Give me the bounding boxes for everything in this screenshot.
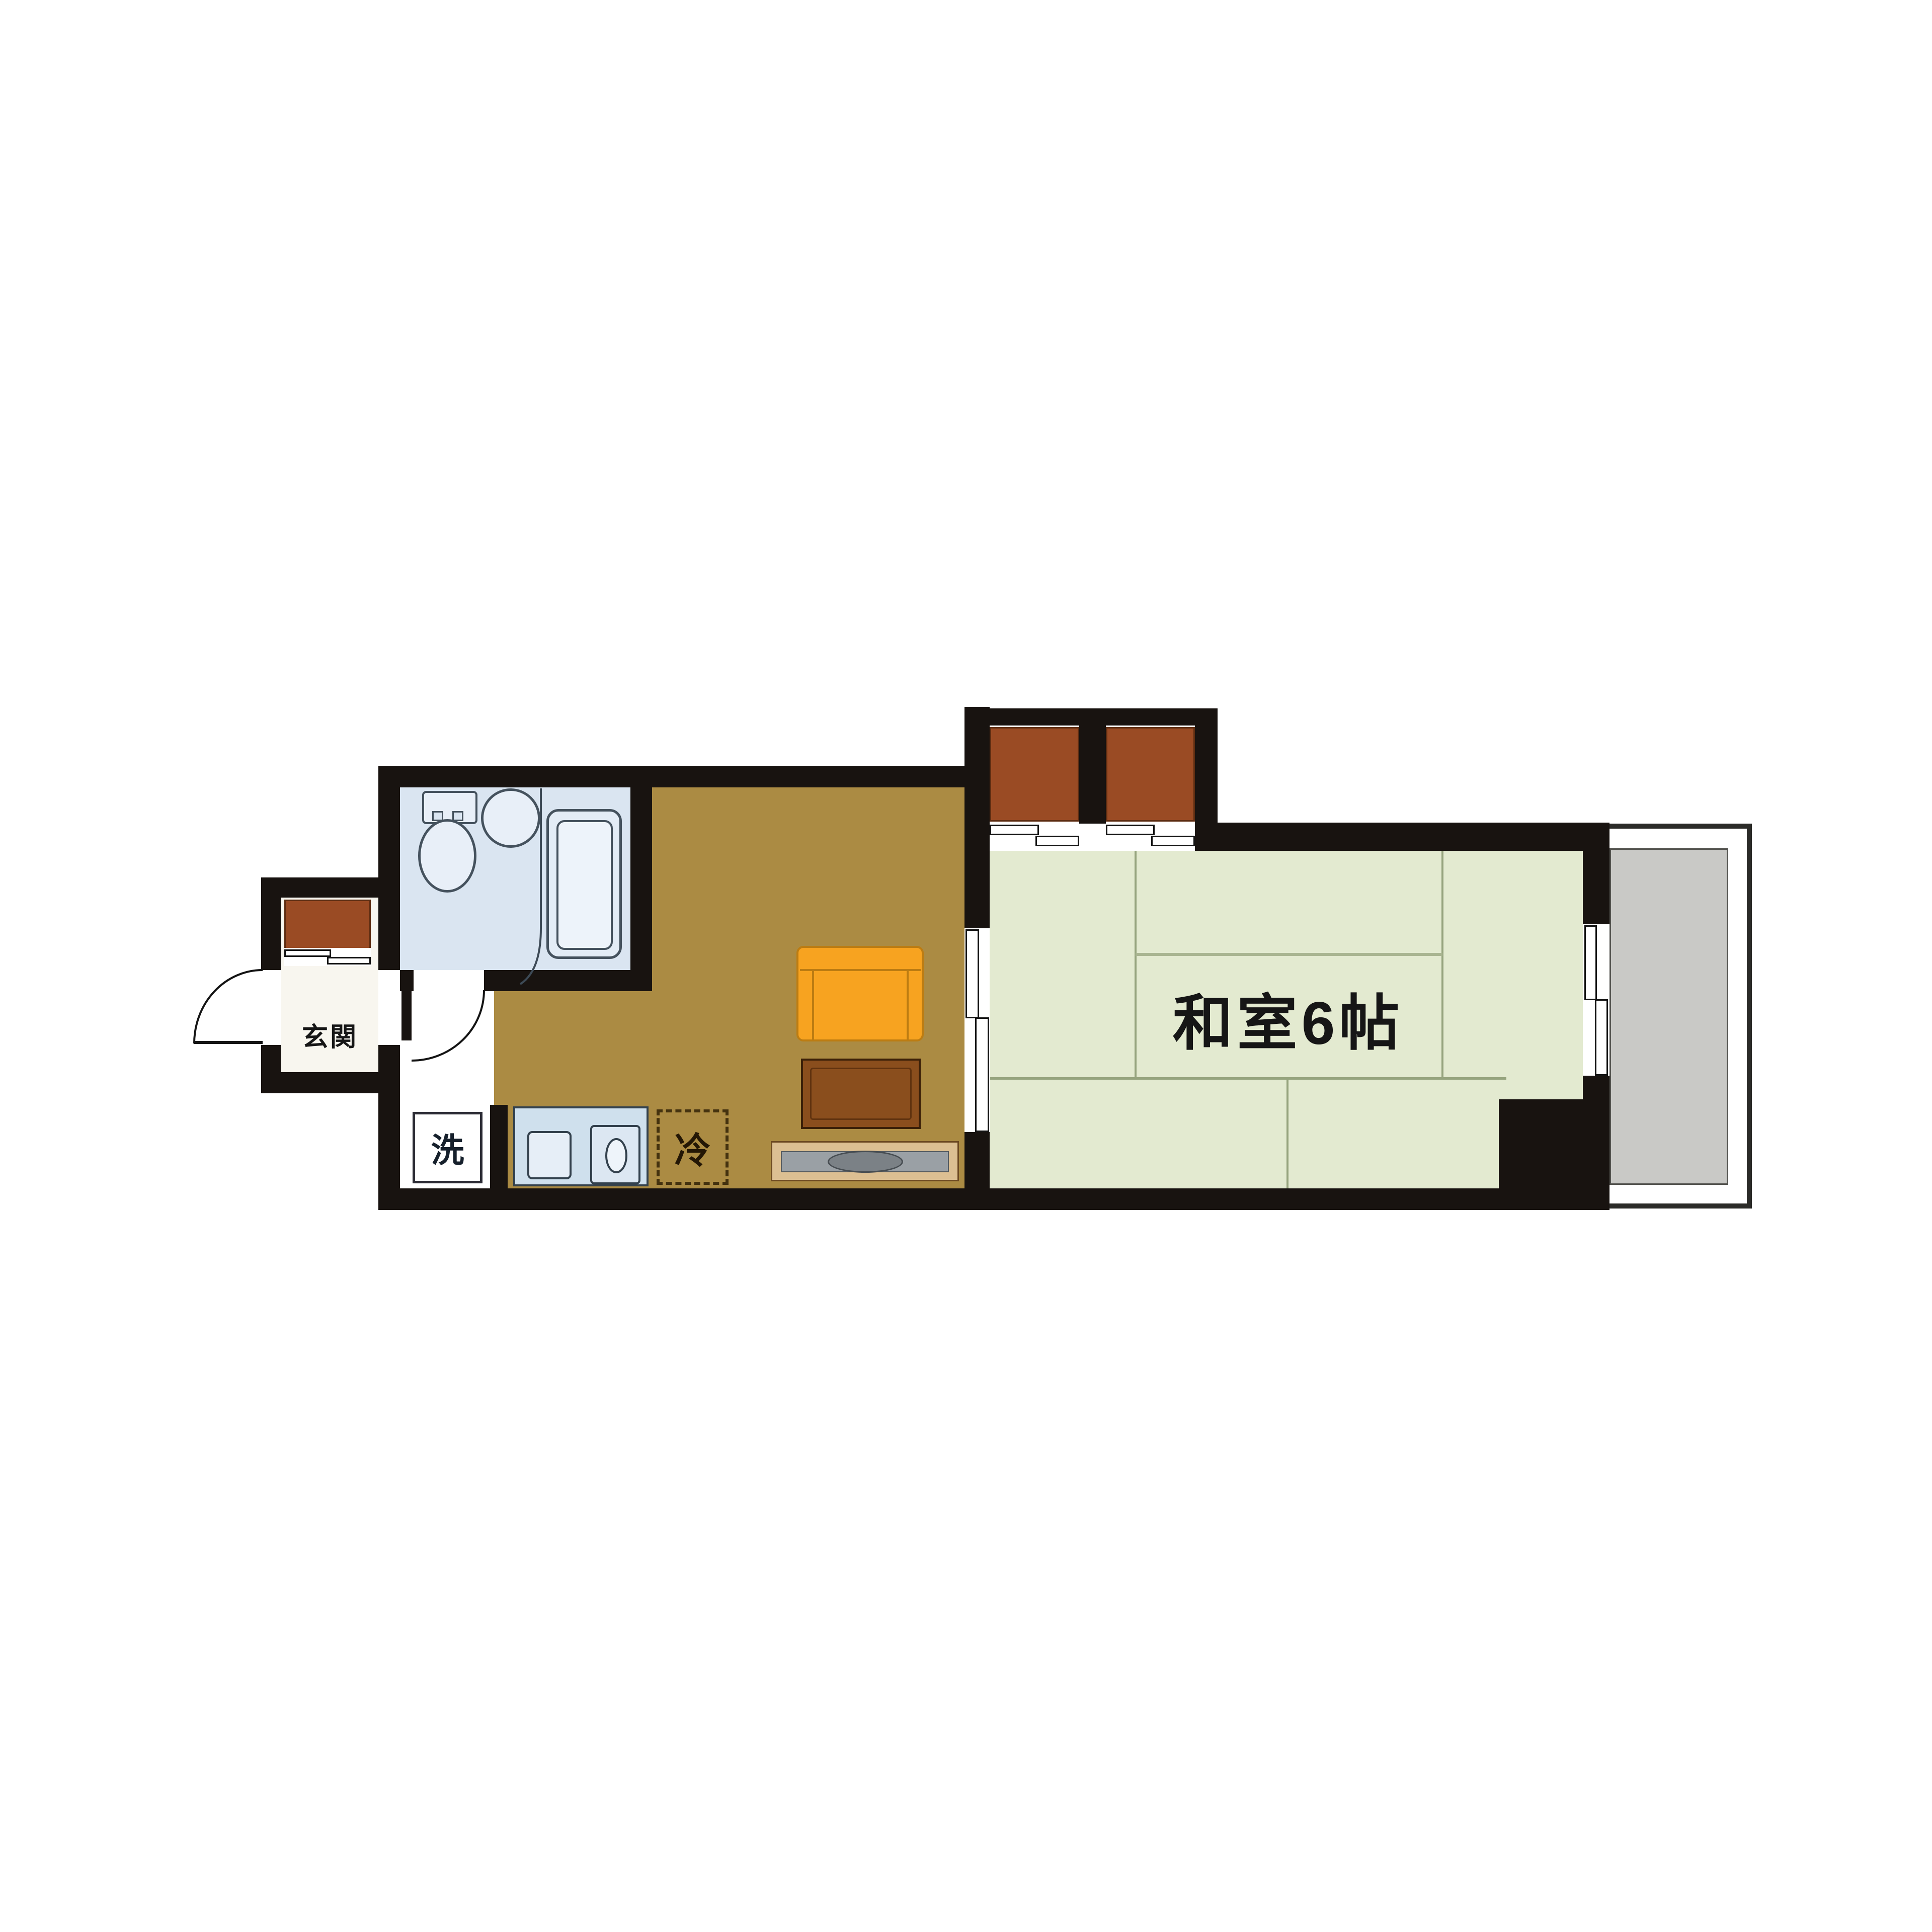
bathroom-partition-line (520, 788, 541, 984)
entrance-label: 玄関 (280, 1019, 380, 1050)
tatami-room-label: 和室6帖 (1087, 980, 1489, 1056)
entrance-door-arc (194, 970, 263, 1043)
bathroom-door-arc (412, 990, 484, 1061)
floor-plan-page: { "document": { "type": "apartment-floor… (0, 0, 1932, 1932)
door-arcs-overlay (0, 0, 1932, 1932)
tatami-room-label-text: 和室6帖 (1173, 974, 1404, 1062)
floor-plan: 洗 冷 (0, 0, 1932, 1932)
entrance-label-text: 玄関 (302, 1016, 358, 1054)
